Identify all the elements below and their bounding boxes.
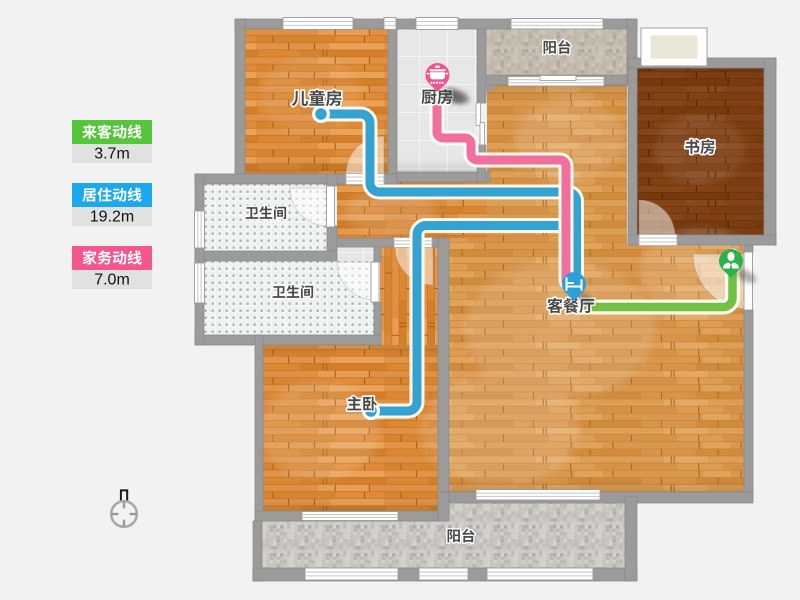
svg-text:7.0m: 7.0m [94,272,130,289]
svg-text:19.2m: 19.2m [90,209,134,226]
svg-text:3.7m: 3.7m [94,146,130,163]
